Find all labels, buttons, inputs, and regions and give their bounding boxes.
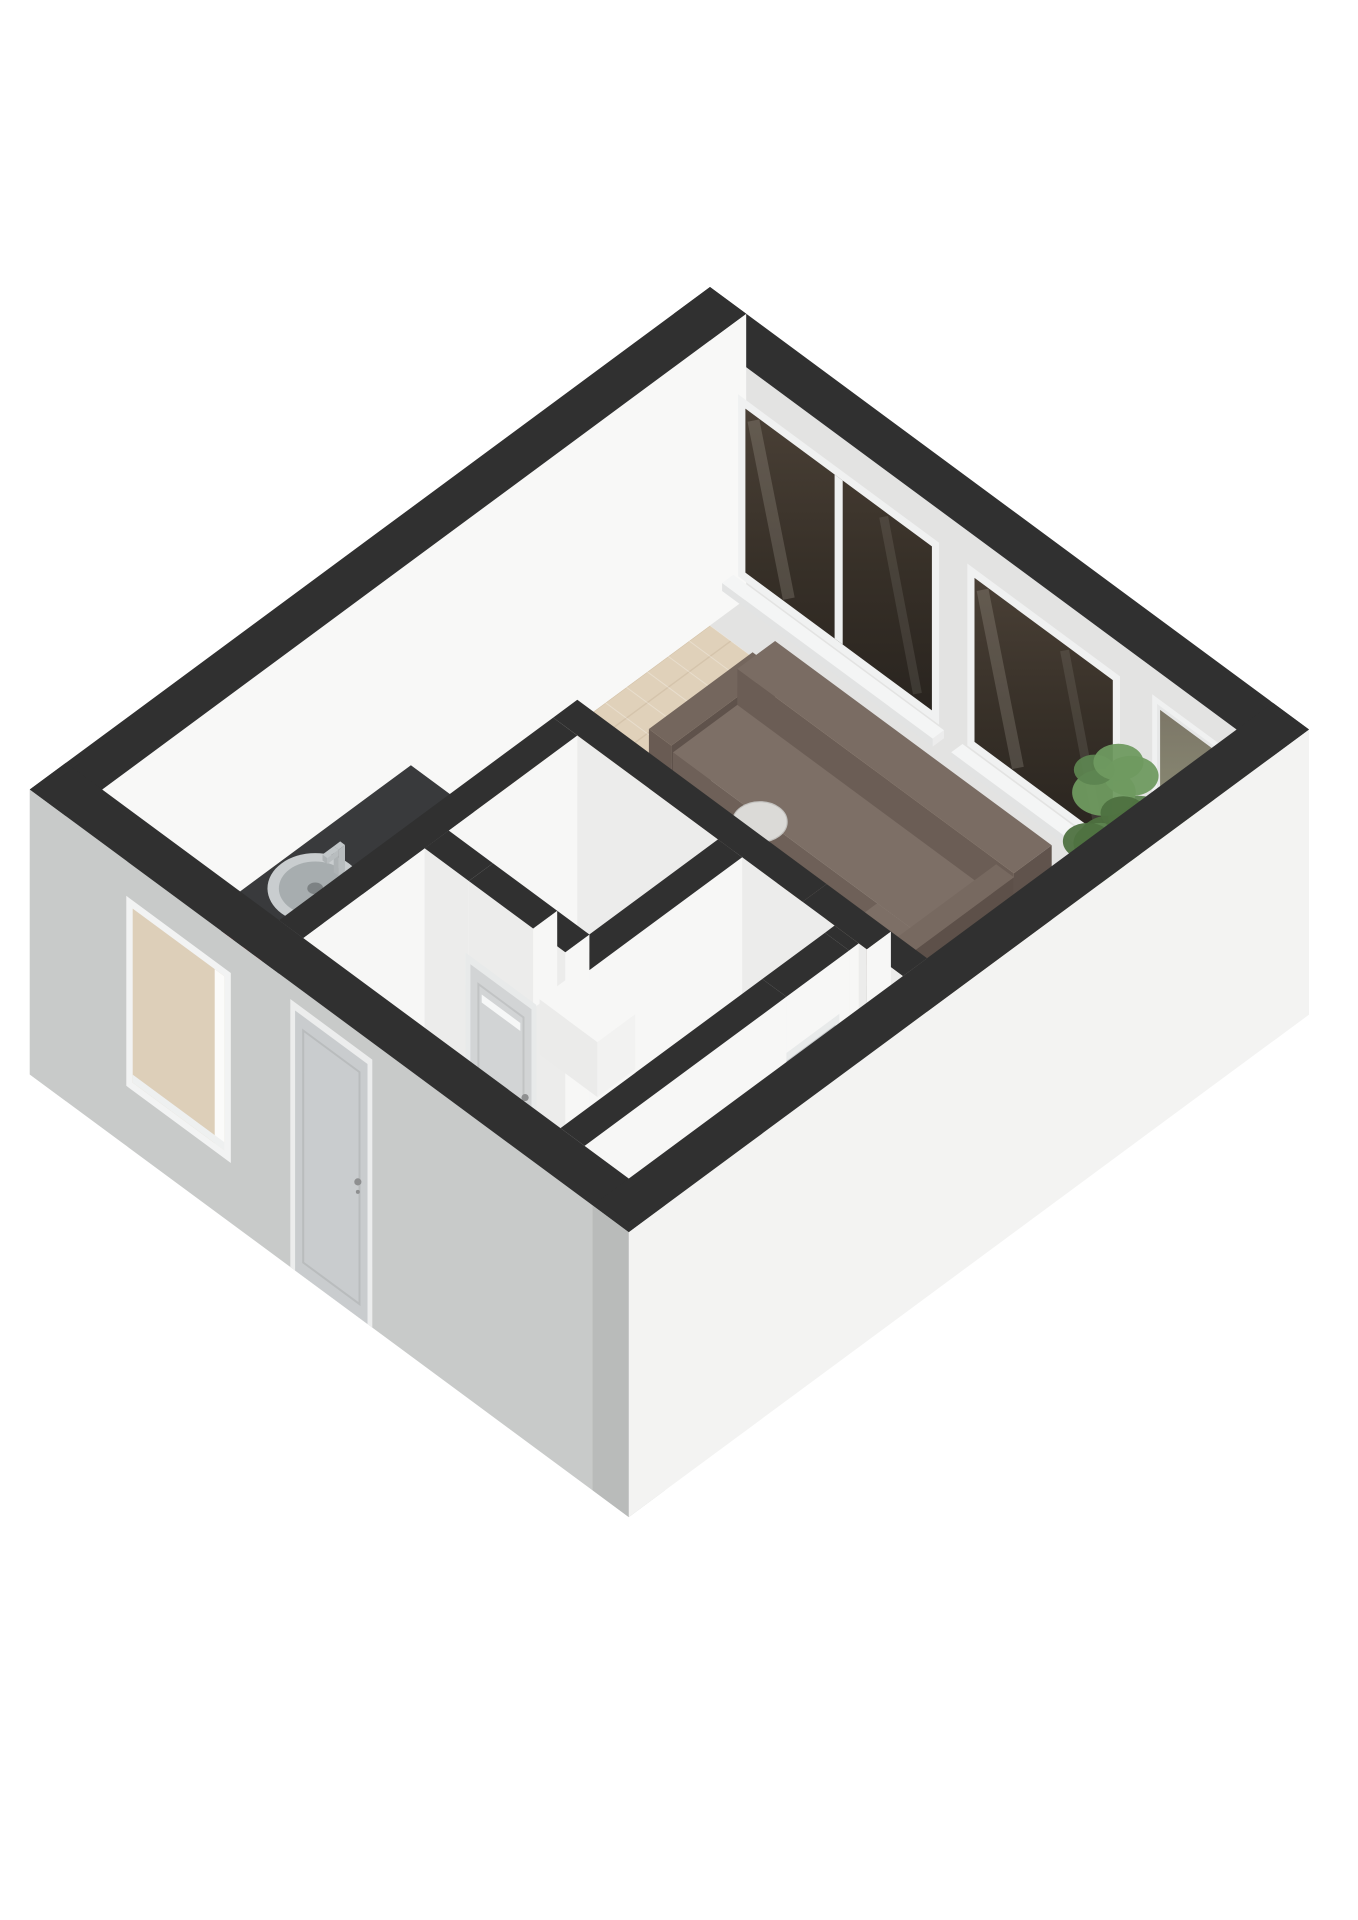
- floorplan-stage: [0, 0, 1358, 1920]
- render-root: [30, 287, 1309, 1517]
- floorplan-3d-render: [0, 0, 1358, 1920]
